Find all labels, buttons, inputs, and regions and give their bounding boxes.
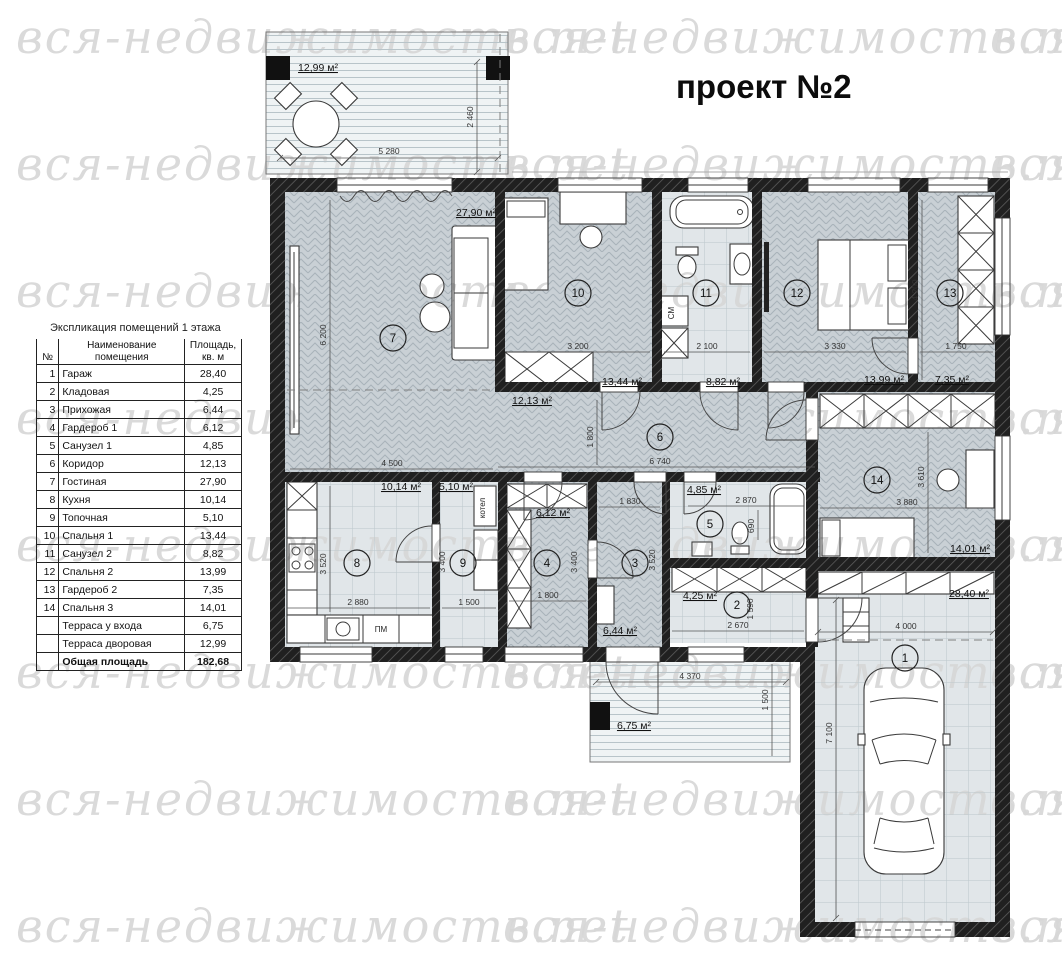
row-name: Санузел 1	[59, 437, 185, 455]
terrace-post	[486, 56, 510, 80]
dim: 2 460	[465, 106, 475, 128]
row-area: 6,12	[185, 419, 242, 437]
dim: 3 880	[896, 497, 918, 507]
room-area: 6,12 м²	[536, 507, 571, 519]
dim: 6 200	[318, 324, 328, 346]
table-row: Общая площадь182,68	[37, 653, 242, 671]
dim: 2 100	[696, 341, 718, 351]
table-row: 3Прихожая6,44	[37, 401, 242, 419]
window	[337, 178, 452, 192]
room-area: 10,14 м²	[381, 481, 421, 493]
row-area: 7,35	[185, 581, 242, 599]
room-area: 5,10 м²	[439, 481, 474, 493]
dim: 3 520	[318, 553, 328, 575]
row-no: 2	[37, 383, 59, 401]
row-area: 13,99	[185, 563, 242, 581]
dim: 7 100	[824, 722, 834, 744]
table-row: 14Спальня 314,01	[37, 599, 242, 617]
room-area: 7,35 м²	[935, 374, 970, 386]
window	[995, 436, 1010, 520]
row-name: Гостиная	[59, 473, 185, 491]
window	[688, 647, 744, 662]
row-name: Спальня 3	[59, 599, 185, 617]
row-name: Кухня	[59, 491, 185, 509]
dim: 3 400	[569, 551, 579, 573]
room-number: 4	[544, 558, 551, 570]
bathtub2-icon	[670, 196, 754, 228]
room-number: 5	[707, 519, 713, 531]
room-number: 13	[944, 288, 957, 300]
boiler-label: котел	[478, 498, 487, 519]
dim: 6 740	[649, 456, 671, 466]
dishwasher-label: ПМ	[375, 625, 388, 634]
table-row: 12Спальня 213,99	[37, 563, 242, 581]
row-no: 11	[37, 545, 59, 563]
dim: 4 500	[381, 458, 403, 468]
table-row: 7Гостиная27,90	[37, 473, 242, 491]
terrace-post	[590, 702, 610, 730]
legend-header-row: № Наименование помещения Площадь, кв. м	[37, 339, 242, 365]
terrace-post	[266, 56, 290, 80]
room-number: 7	[390, 333, 396, 345]
room-number: 14	[871, 475, 884, 487]
table-row: 13Гардероб 27,35	[37, 581, 242, 599]
row-no: 7	[37, 473, 59, 491]
row-no: 3	[37, 401, 59, 419]
dim: 3 610	[916, 466, 926, 488]
row-area: 27,90	[185, 473, 242, 491]
bed1-icon	[504, 198, 548, 290]
wardrobe-room13-icon	[958, 196, 994, 344]
dim: 2 670	[727, 620, 749, 630]
row-name: Общая площадь	[59, 653, 185, 671]
room-legend: Экспликация помещений 1 этажа № Наименов…	[36, 322, 242, 671]
row-area: 12,13	[185, 455, 242, 473]
dim: 4 200	[910, 279, 920, 301]
dim: 3 200	[567, 341, 589, 351]
row-name: Терраса у входа	[59, 617, 185, 635]
row-area: 5,10	[185, 509, 242, 527]
row-no: 9	[37, 509, 59, 527]
page-title: проект №2	[676, 68, 852, 106]
room-area: 27,90 м²	[456, 207, 496, 219]
room-number: 10	[572, 288, 585, 300]
dim: 690	[746, 519, 756, 533]
row-no: 10	[37, 527, 59, 545]
row-name: Гардероб 1	[59, 419, 185, 437]
room-number: 6	[657, 432, 663, 444]
col-no: №	[37, 339, 59, 365]
bath-cabinet-icon	[660, 328, 688, 358]
table-row: Терраса дворовая12,99	[37, 635, 242, 653]
row-area: 6,44	[185, 401, 242, 419]
sofa-icon	[452, 226, 502, 360]
row-area: 12,99	[185, 635, 242, 653]
row-area: 10,14	[185, 491, 242, 509]
dim: 1 500	[458, 597, 480, 607]
table-row: 11Санузел 28,82	[37, 545, 242, 563]
terrace-top-area: 12,99 м²	[298, 62, 338, 74]
room-number: 1	[902, 653, 908, 665]
row-area: 6,75	[185, 617, 242, 635]
table-row: 9Топочная5,10	[37, 509, 242, 527]
room-area: 28,40 м²	[949, 588, 989, 600]
row-name: Кладовая	[59, 383, 185, 401]
toilet2-icon	[676, 247, 698, 278]
floor-plan-page: проект №2 Экспликация помещений 1 этажа …	[0, 0, 1062, 960]
legend-table: № Наименование помещения Площадь, кв. м …	[36, 339, 242, 671]
dim: 1 590	[745, 598, 755, 620]
window	[558, 178, 642, 192]
row-no	[37, 653, 59, 671]
sink1-icon	[692, 542, 712, 556]
row-area: 28,40	[185, 365, 242, 383]
side-table-icon	[420, 274, 444, 298]
row-area: 13,44	[185, 527, 242, 545]
table-row: 10Спальня 113,44	[37, 527, 242, 545]
row-name: Гараж	[59, 365, 185, 383]
dim: 1 830	[619, 496, 641, 506]
table-row: 1Гараж28,40	[37, 365, 242, 383]
legend-table-body: 1Гараж28,402Кладовая4,253Прихожая6,444Га…	[37, 365, 242, 671]
table-row: Терраса у входа6,75	[37, 617, 242, 635]
room-number: 12	[791, 288, 804, 300]
room-area: 13,44 м²	[602, 376, 642, 388]
row-no	[37, 635, 59, 653]
row-name: Топочная	[59, 509, 185, 527]
row-area: 14,01	[185, 599, 242, 617]
table-row: 8Кухня10,14	[37, 491, 242, 509]
row-no: 4	[37, 419, 59, 437]
dim: 1 800	[537, 590, 559, 600]
row-name: Гардероб 2	[59, 581, 185, 599]
window	[995, 218, 1010, 335]
dim: 2 880	[347, 597, 369, 607]
dim: 3 330	[824, 341, 846, 351]
table-row: 2Кладовая4,25	[37, 383, 242, 401]
row-area: 8,82	[185, 545, 242, 563]
side-table-icon	[420, 302, 450, 332]
room-number: 9	[460, 558, 466, 570]
row-name: Прихожая	[59, 401, 185, 419]
tv-icon	[290, 246, 299, 434]
dim: 3 520	[647, 549, 657, 571]
room-area: 8,82 м²	[706, 376, 741, 388]
dim: 4 370	[679, 671, 701, 681]
row-name: Коридор	[59, 455, 185, 473]
room-number: 2	[734, 600, 740, 612]
window	[505, 647, 583, 662]
table-row: 4Гардероб 16,12	[37, 419, 242, 437]
car-icon	[858, 668, 950, 874]
row-no	[37, 617, 59, 635]
row-no: 14	[37, 599, 59, 617]
room-area: 13,99 м²	[864, 374, 904, 386]
legend-title: Экспликация помещений 1 этажа	[50, 322, 242, 334]
wardrobe-room10-icon	[505, 352, 593, 386]
dim: 2 870	[735, 495, 757, 505]
room-number: 8	[354, 558, 360, 570]
room-area: 4,85 м²	[687, 484, 722, 496]
col-name: Наименование помещения	[59, 339, 185, 365]
row-area: 4,85	[185, 437, 242, 455]
row-no: 6	[37, 455, 59, 473]
washer-label: СМ	[667, 306, 676, 319]
window	[928, 178, 988, 192]
bed2-icon	[818, 240, 910, 330]
wardrobe-room2-icon	[672, 566, 806, 592]
bathtub1-icon	[770, 484, 808, 554]
row-name: Спальня 2	[59, 563, 185, 581]
dim: 5 280	[378, 146, 400, 156]
dim: 4 000	[895, 621, 917, 631]
window	[808, 178, 900, 192]
room-area: 14,01 м²	[950, 543, 990, 555]
tv2-icon	[764, 242, 769, 312]
window	[445, 647, 483, 662]
row-no: 13	[37, 581, 59, 599]
row-name: Спальня 1	[59, 527, 185, 545]
row-area: 182,68	[185, 653, 242, 671]
row-no: 5	[37, 437, 59, 455]
bed3-icon	[820, 518, 914, 558]
vanity2-icon	[730, 244, 754, 284]
table-row: 6Коридор12,13	[37, 455, 242, 473]
room-area: 6,44 м²	[603, 625, 638, 637]
room-area: 12,13 м²	[512, 395, 552, 407]
dim: 3 400	[437, 551, 447, 573]
window	[300, 647, 372, 662]
row-name: Санузел 2	[59, 545, 185, 563]
wardrobe-room14-icon	[820, 394, 995, 428]
table-row: 5Санузел 14,85	[37, 437, 242, 455]
room-number: 3	[632, 558, 638, 570]
room-area: 4,25 м²	[683, 590, 718, 602]
dim: 1 800	[585, 426, 595, 448]
row-area: 4,25	[185, 383, 242, 401]
terrace-entrance-area: 6,75 м²	[617, 720, 652, 732]
row-no: 1	[37, 365, 59, 383]
room-number: 11	[700, 288, 712, 300]
window	[688, 178, 748, 192]
row-no: 12	[37, 563, 59, 581]
col-area: Площадь, кв. м	[185, 339, 242, 365]
dim: 1 750	[945, 341, 967, 351]
row-name: Терраса дворовая	[59, 635, 185, 653]
row-no: 8	[37, 491, 59, 509]
dim: 1 500	[760, 689, 770, 711]
